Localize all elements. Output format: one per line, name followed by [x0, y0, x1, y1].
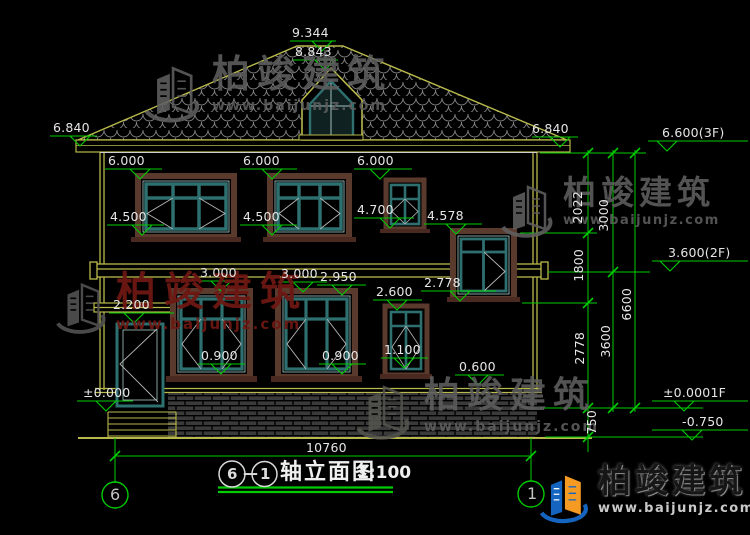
level-win2-top-a: 6.000	[108, 155, 145, 168]
title-dash: —	[243, 466, 258, 481]
level-eave-left: 6.840	[53, 122, 90, 135]
level-win1-sill-a: 0.900	[201, 350, 238, 363]
axis-bubbles	[102, 481, 544, 508]
level-floor-1f: ±0.0001F	[663, 387, 726, 400]
level-win2-sill-c: 4.700	[357, 204, 394, 217]
entry-steps	[108, 412, 176, 438]
dim-6600: 6600	[621, 282, 634, 326]
axis-bubble-left-number: 6	[110, 487, 120, 503]
dim-1800: 1800	[573, 243, 586, 287]
level-win1-sill-c: 1.100	[384, 344, 421, 357]
window-1f-left	[166, 291, 257, 382]
level-plinth-top: 0.600	[459, 361, 496, 374]
level-lintel: 2.950	[320, 271, 357, 284]
dim-750: 750	[586, 400, 599, 444]
dim-total-width: 10760	[306, 442, 347, 455]
axis-bubble-right-number: 1	[527, 486, 537, 502]
dim-3600: 3600	[600, 319, 613, 363]
level-floor-zero: ±0.000	[83, 387, 130, 400]
title-axis-to: 1	[260, 467, 270, 482]
level-roof-3f: 6.600(3F)	[662, 127, 724, 140]
level-win1-sill-b: 0.900	[322, 350, 359, 363]
level-win2-top-c: 6.000	[357, 155, 394, 168]
dim-2778: 2778	[574, 326, 587, 370]
title-axis-from: 6	[227, 467, 237, 482]
window-2f-left	[131, 176, 241, 242]
level-canopy: 2.200	[113, 299, 150, 312]
level-dormer-top: 8.843	[295, 46, 332, 59]
drawing-scale: 1:100	[357, 465, 411, 482]
level-win1-top-b: 3.000	[281, 268, 318, 281]
brick-plinth	[168, 393, 537, 438]
level-win2-sill-b: 4.500	[243, 211, 280, 224]
level-win2-sill-a: 4.500	[110, 211, 147, 224]
dim-2022: 2022	[572, 185, 585, 229]
level-stair-win-sill: 2.778	[424, 277, 461, 290]
level-win1-top-c: 2.600	[376, 286, 413, 299]
level-stair-win-top: 4.578	[427, 210, 464, 223]
level-win2-top-b: 6.000	[243, 155, 280, 168]
elevation-drawing-canvas: 柏竣建筑 www.baijunjz.com 柏竣建筑 www.baijunjz.…	[0, 0, 750, 535]
level-floor-2f: 3.600(2F)	[668, 247, 730, 260]
level-ground: -0.750	[682, 416, 724, 429]
level-win1-top-a: 3.000	[200, 267, 237, 280]
elevation-linework	[0, 0, 750, 535]
dim-3000: 3000	[598, 193, 611, 237]
level-eave-right: 6.840	[532, 123, 569, 136]
level-ridge: 9.344	[292, 27, 329, 40]
